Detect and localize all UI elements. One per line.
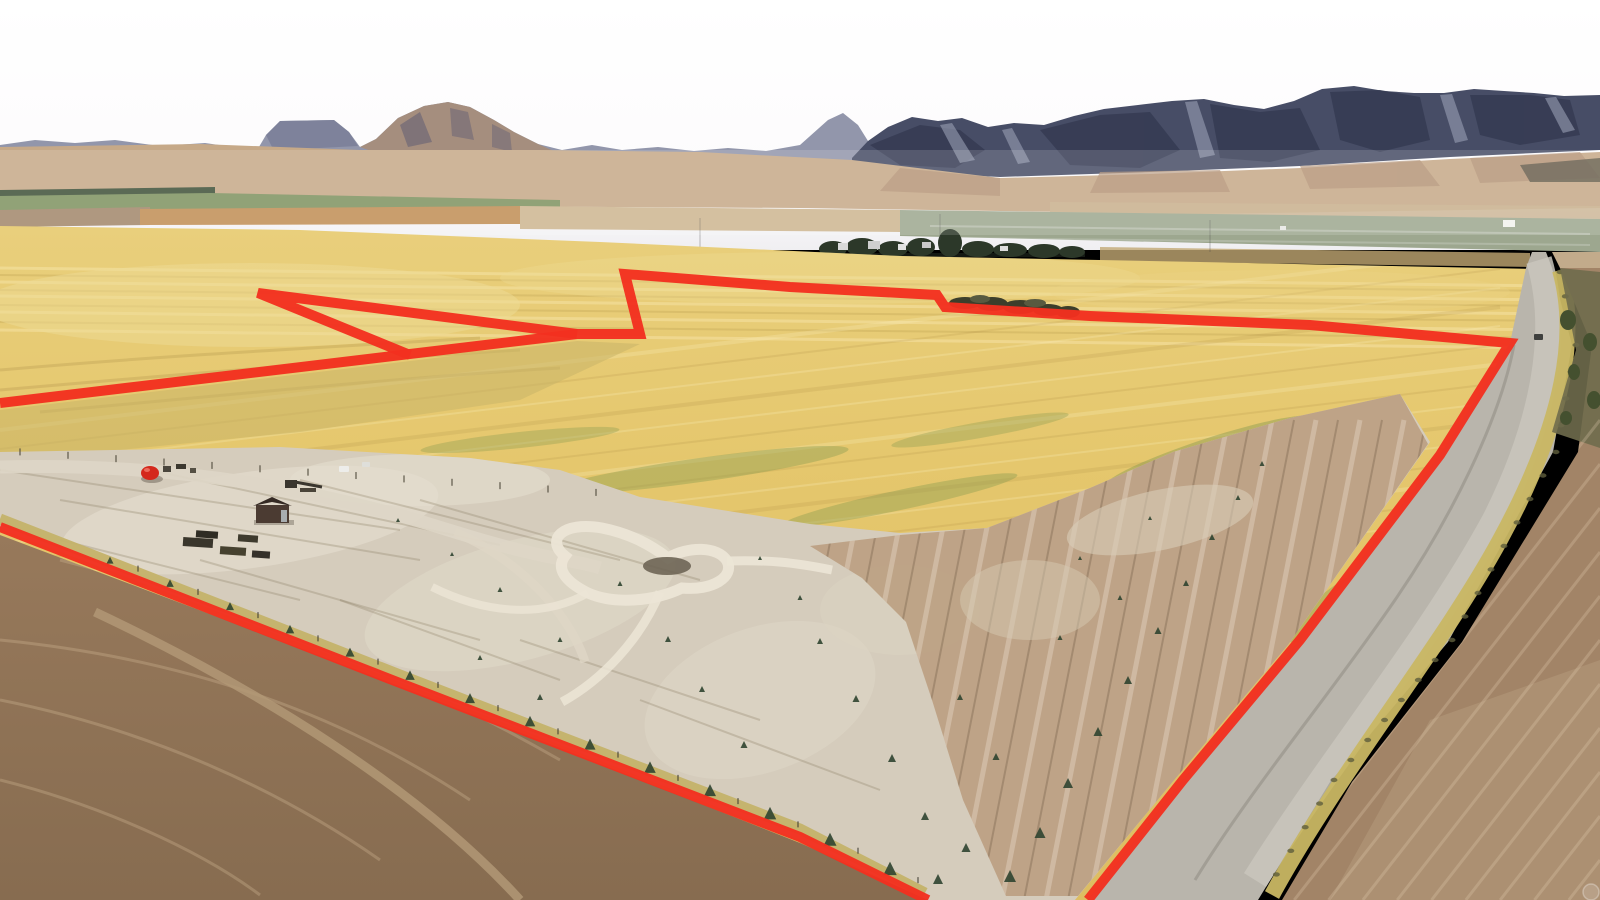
- terrain-texture: [1273, 872, 1280, 876]
- equipment: [176, 464, 186, 469]
- terrain-texture: [1331, 778, 1338, 782]
- terrain-texture: [1553, 450, 1560, 454]
- terrain-texture: [1488, 567, 1495, 571]
- terrain-texture: [1540, 473, 1547, 477]
- terrain-texture: [1302, 825, 1309, 829]
- red-tank: [141, 466, 159, 480]
- aerial-photo: [0, 0, 1600, 900]
- horizon-haze: [0, 150, 1600, 235]
- terrain-texture: [1449, 638, 1456, 642]
- aerial-photo-canvas: [0, 0, 1600, 900]
- loop-island-gravel: [643, 557, 691, 575]
- terrain-texture: [1398, 698, 1405, 702]
- watermark-logo: [1583, 884, 1599, 900]
- shed-door: [281, 510, 287, 522]
- white-pickup: [339, 466, 349, 472]
- terrain-texture: [1514, 520, 1521, 524]
- terrain-texture: [1462, 614, 1469, 618]
- terrain-texture: [1364, 738, 1371, 742]
- terrain-texture: [1432, 658, 1439, 662]
- car-on-road: [1534, 334, 1543, 340]
- terrain-texture: [1527, 497, 1534, 501]
- terrain-texture: [1501, 544, 1508, 548]
- equipment: [163, 466, 171, 472]
- terrain-texture: [1287, 849, 1294, 853]
- terrain-texture: [1415, 678, 1422, 682]
- east-top-strip: [1552, 252, 1600, 268]
- red-tank-highlight: [144, 468, 150, 472]
- terrain-texture: [1381, 718, 1388, 722]
- white-vehicle: [362, 462, 370, 467]
- terrain-texture: [1347, 758, 1354, 762]
- equipment: [190, 468, 196, 473]
- terrain-texture: [1316, 801, 1323, 805]
- terrain-texture: [1475, 591, 1482, 595]
